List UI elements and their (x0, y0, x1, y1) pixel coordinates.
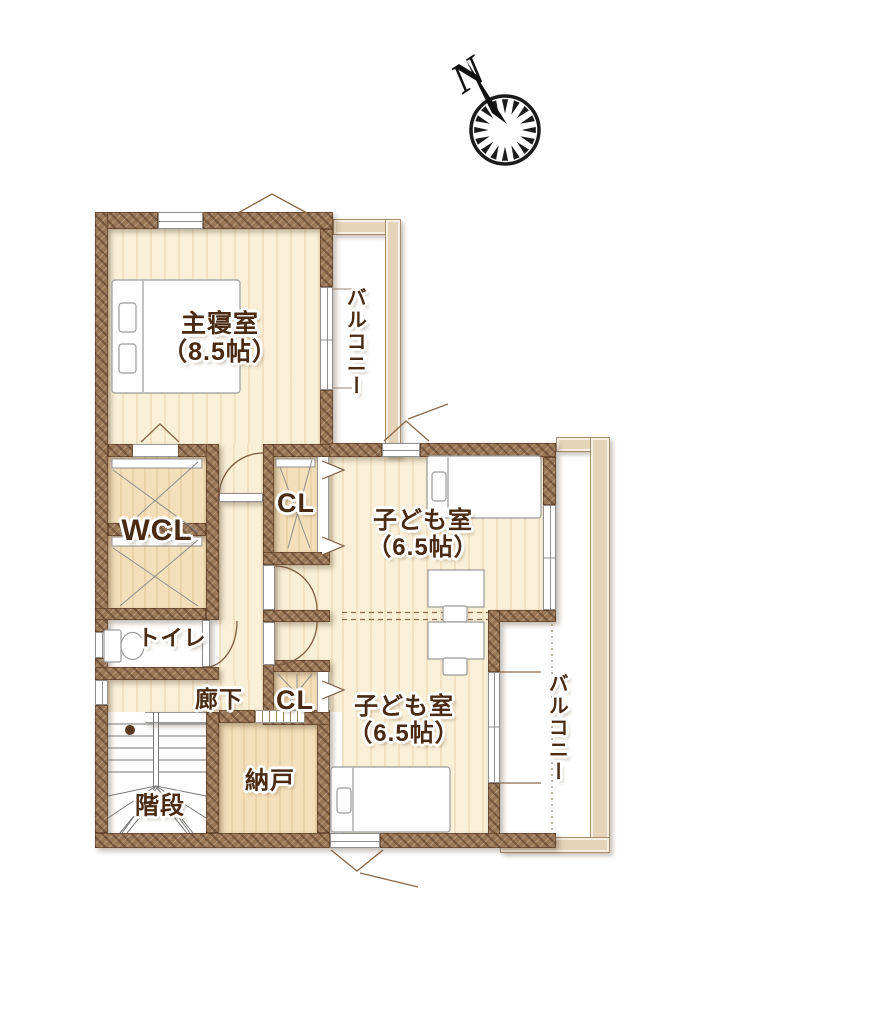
label-size: （8.5帖） (162, 338, 278, 366)
label-text: 子ども室 (354, 693, 454, 720)
label-wcl: WCL (121, 514, 192, 548)
window-kids2-east (488, 672, 500, 783)
label-size: （6.5帖） (367, 534, 478, 561)
label-toilet: トイレ (137, 627, 206, 652)
label-text: トイレ (137, 626, 206, 651)
wall (206, 444, 219, 620)
label-text: 納戸 (245, 768, 295, 795)
window-hallway-west (95, 680, 108, 705)
door-leaf-master (219, 493, 263, 502)
label-storage: 納戸 (245, 769, 295, 796)
wall (95, 608, 206, 620)
label-size: （6.5帖） (348, 720, 459, 747)
label-text: バルコニー (343, 287, 365, 397)
wall (317, 712, 330, 833)
label-text: WCL (121, 514, 192, 547)
label-cl-upper: CL (277, 488, 315, 518)
floor-plan: N 主寝室 （8.5帖） バルコニー WCL CL 子ども室 （6.5帖） トイ… (0, 0, 870, 1024)
label-text: CL (276, 685, 314, 715)
window-toilet-west (95, 632, 108, 658)
label-text: 廊下 (195, 686, 243, 712)
label-stairs: 階段 (135, 794, 185, 821)
wall (203, 212, 333, 229)
wall (420, 443, 556, 457)
wall (543, 457, 556, 505)
door-leaf-kids2 (263, 622, 275, 665)
window-kids1-east (543, 505, 556, 610)
label-text: バルコニー (545, 673, 567, 783)
window-master-east (320, 287, 333, 390)
wall (95, 833, 330, 848)
label-text: 子ども室 (373, 507, 473, 534)
label-balcony-top: バルコニー (343, 287, 365, 397)
opening-stairs (145, 712, 206, 723)
label-text: 主寝室 (181, 310, 259, 338)
window-master-north (158, 212, 203, 229)
wall (329, 443, 382, 457)
opening-wcl-entrance (133, 444, 178, 457)
label-text: 階段 (135, 793, 185, 820)
wall (320, 229, 333, 287)
label-master-bedroom: 主寝室 （8.5帖） (162, 310, 278, 366)
window-kids2-south (330, 833, 380, 848)
wall (95, 705, 108, 833)
wall (108, 444, 133, 457)
label-kids-room-1: 子ども室 （6.5帖） (367, 508, 478, 562)
wall (95, 212, 108, 632)
wall (488, 610, 500, 672)
wall (95, 667, 219, 680)
label-hallway: 廊下 (195, 687, 243, 713)
wall (263, 610, 330, 622)
wall (263, 444, 274, 565)
door-cl-upper-bifold (317, 457, 329, 552)
door-leaf-kids1 (263, 565, 275, 610)
wall (263, 552, 330, 565)
label-kids-room-2: 子ども室 （6.5帖） (348, 694, 459, 748)
label-balcony-right: バルコニー (545, 673, 567, 783)
label-cl-lower: CL (276, 685, 314, 715)
door-cl-lower-bifold (317, 672, 329, 712)
wall (380, 833, 556, 848)
label-text: CL (277, 488, 315, 518)
window-kids1-north (382, 443, 420, 457)
wall (206, 712, 219, 833)
